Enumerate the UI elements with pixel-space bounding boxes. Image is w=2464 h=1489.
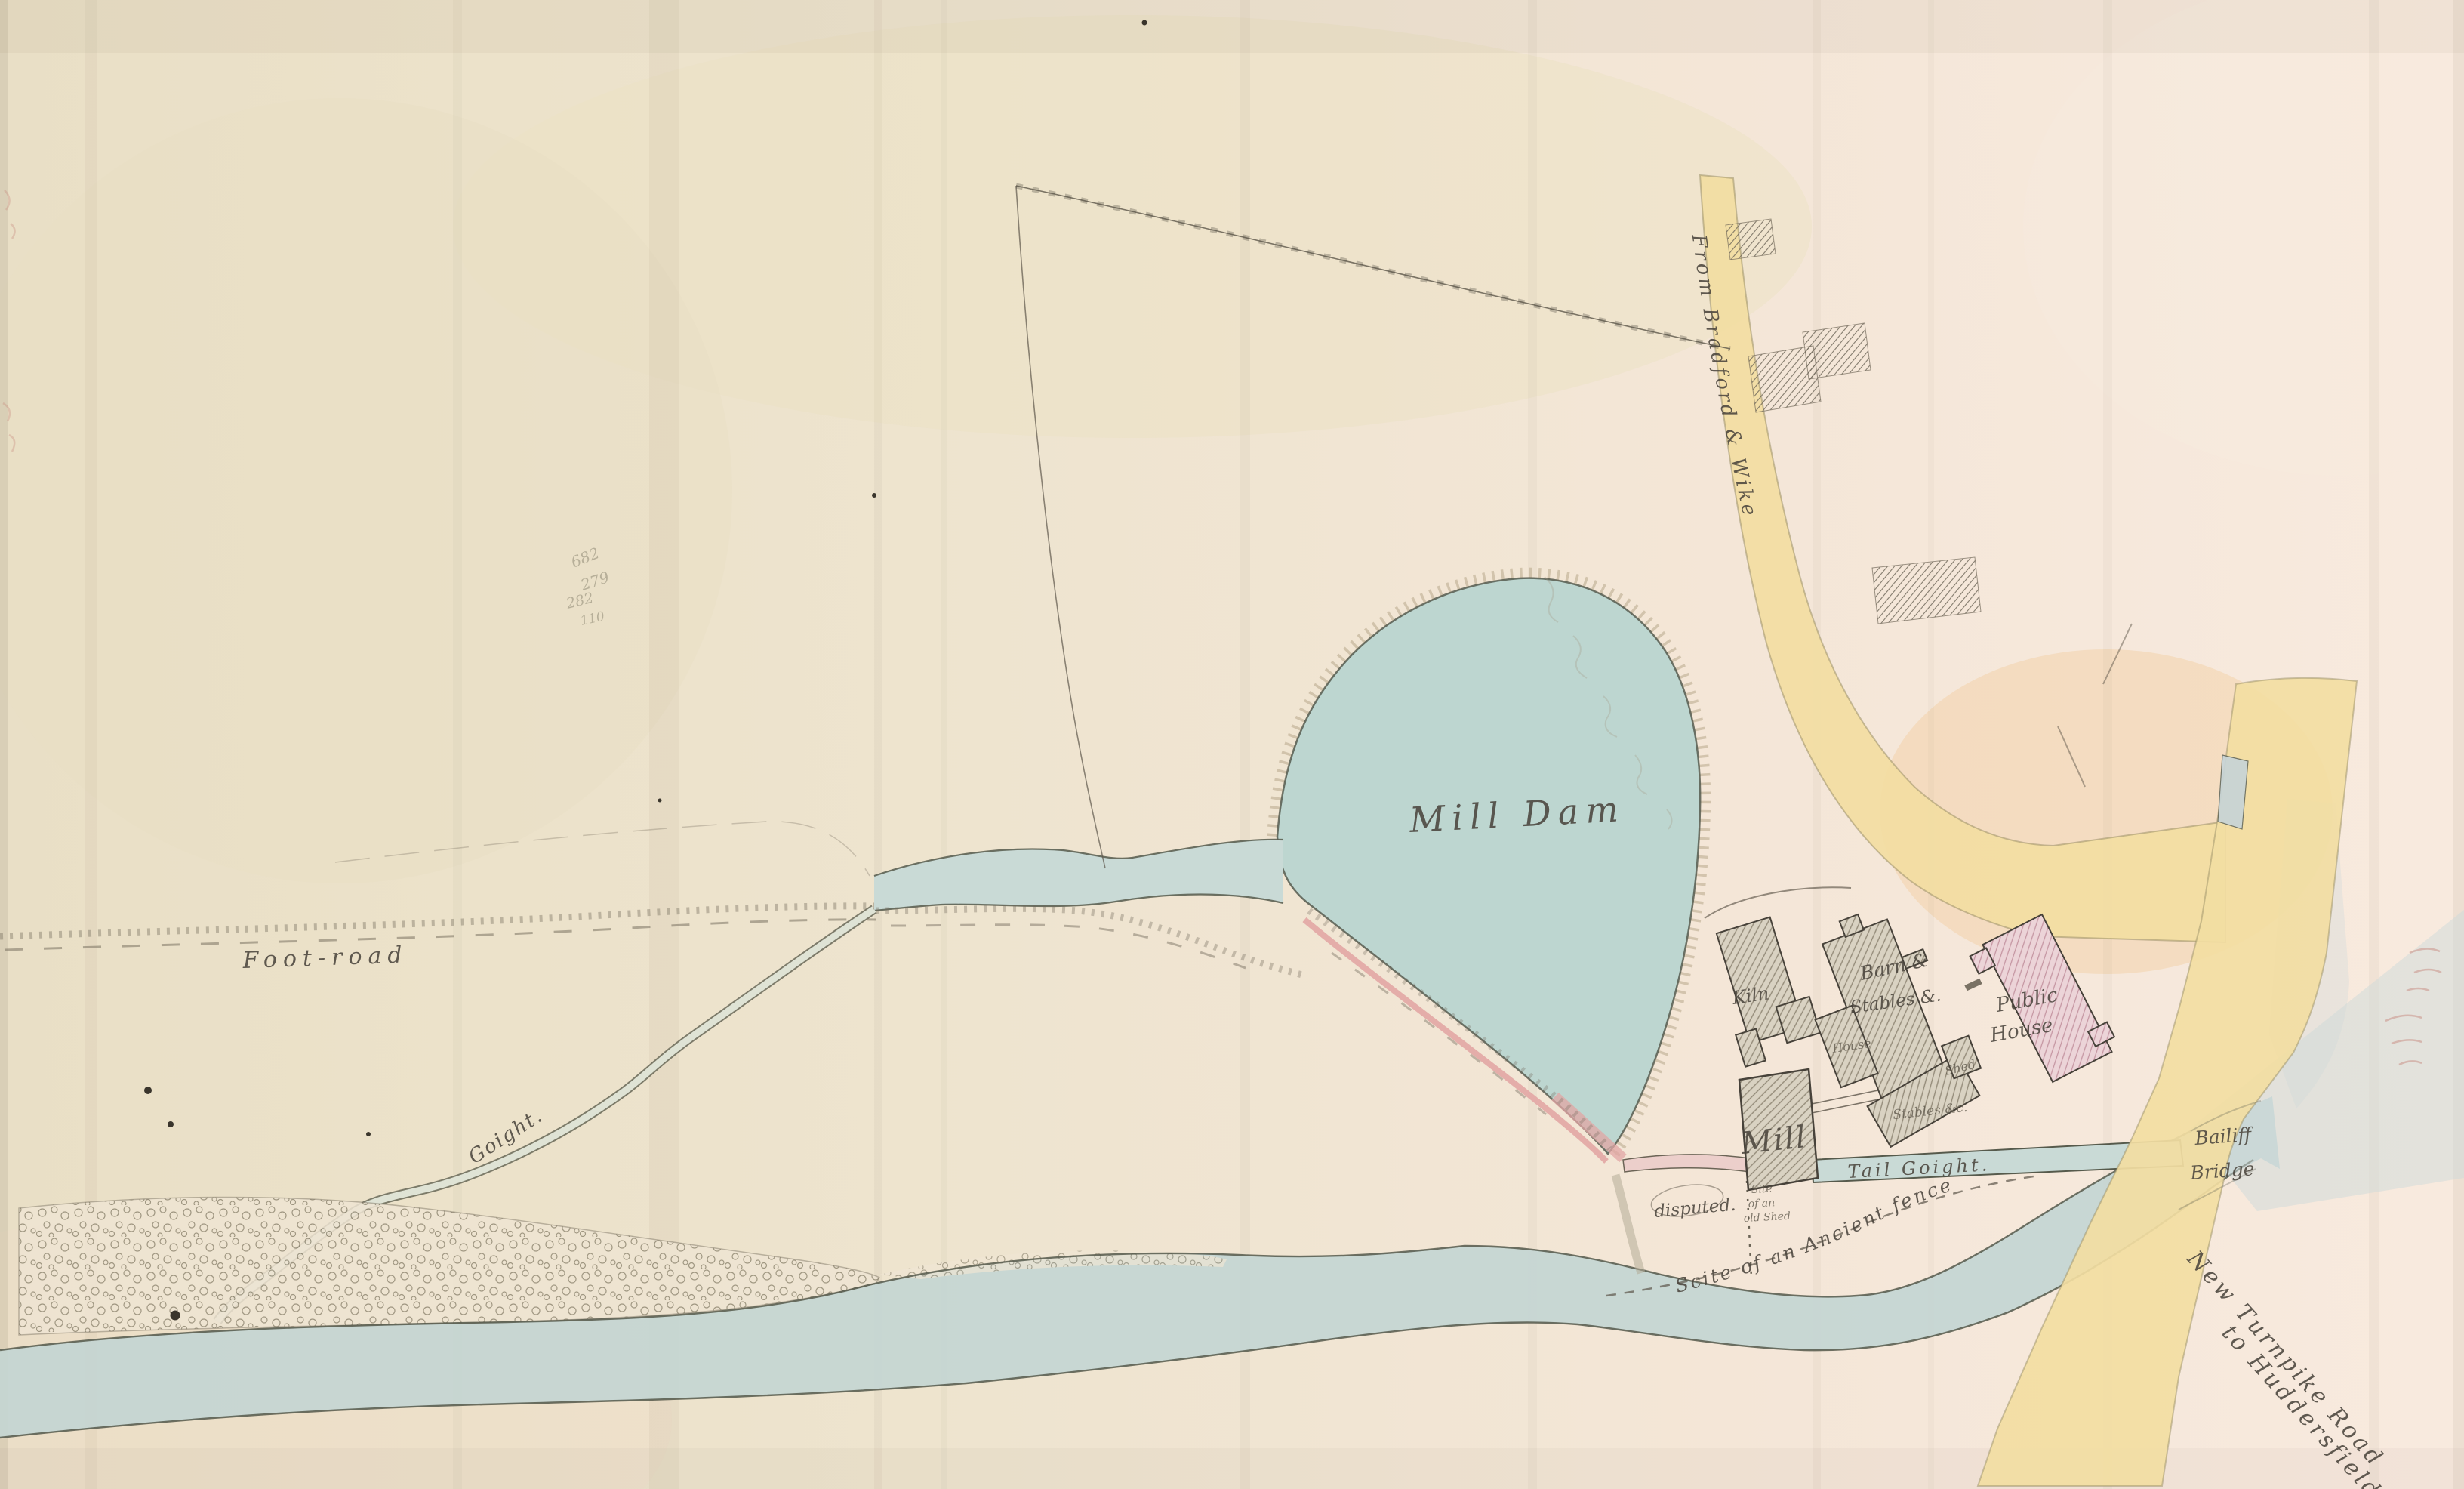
bailiff-bridge-label-line2: Bridge (2188, 1158, 2255, 1184)
mill-label: Mill (1739, 1120, 1809, 1161)
bailiff-bridge-label-line1: Bailiff (2193, 1124, 2255, 1150)
old-shed-label-line3: old Shed (1743, 1210, 1791, 1225)
old-shed-label-line1: Site (1751, 1183, 1773, 1196)
scanned-map-page: Mill Dam Foot-road Goight. Kiln Barn & S… (0, 0, 2464, 1489)
old-shed-label-line2: of an (1748, 1197, 1775, 1210)
map-canvas: Mill Dam Foot-road Goight. Kiln Barn & S… (0, 0, 2464, 1489)
